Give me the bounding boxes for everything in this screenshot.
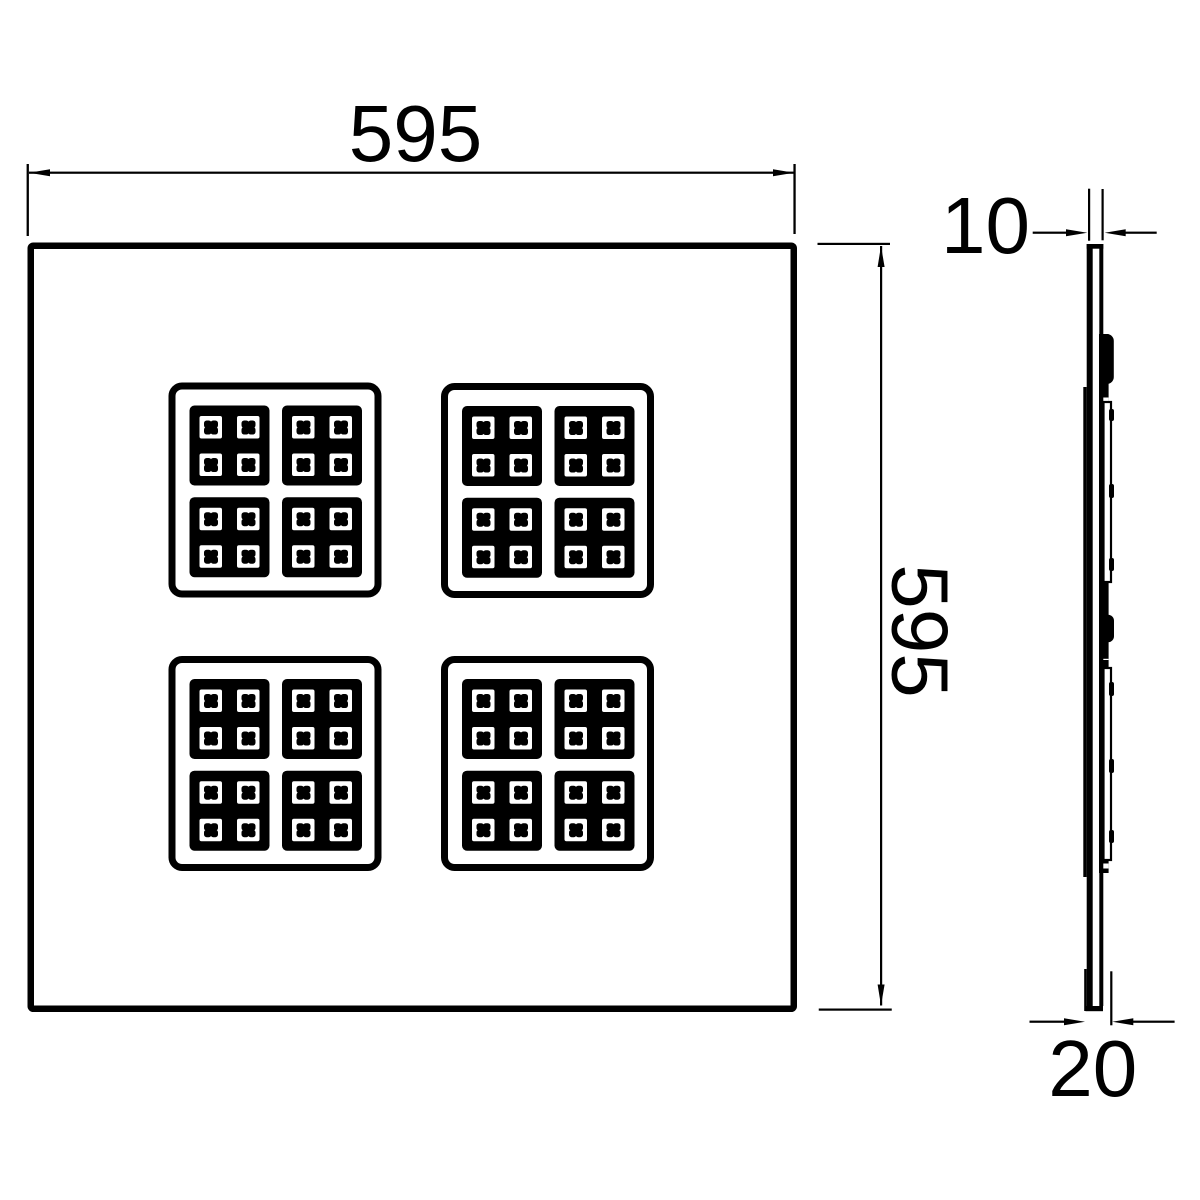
svg-text:595: 595 [876, 564, 965, 697]
svg-text:20: 20 [1048, 1024, 1137, 1113]
svg-text:10: 10 [941, 181, 1030, 270]
svg-text:595: 595 [349, 89, 482, 178]
